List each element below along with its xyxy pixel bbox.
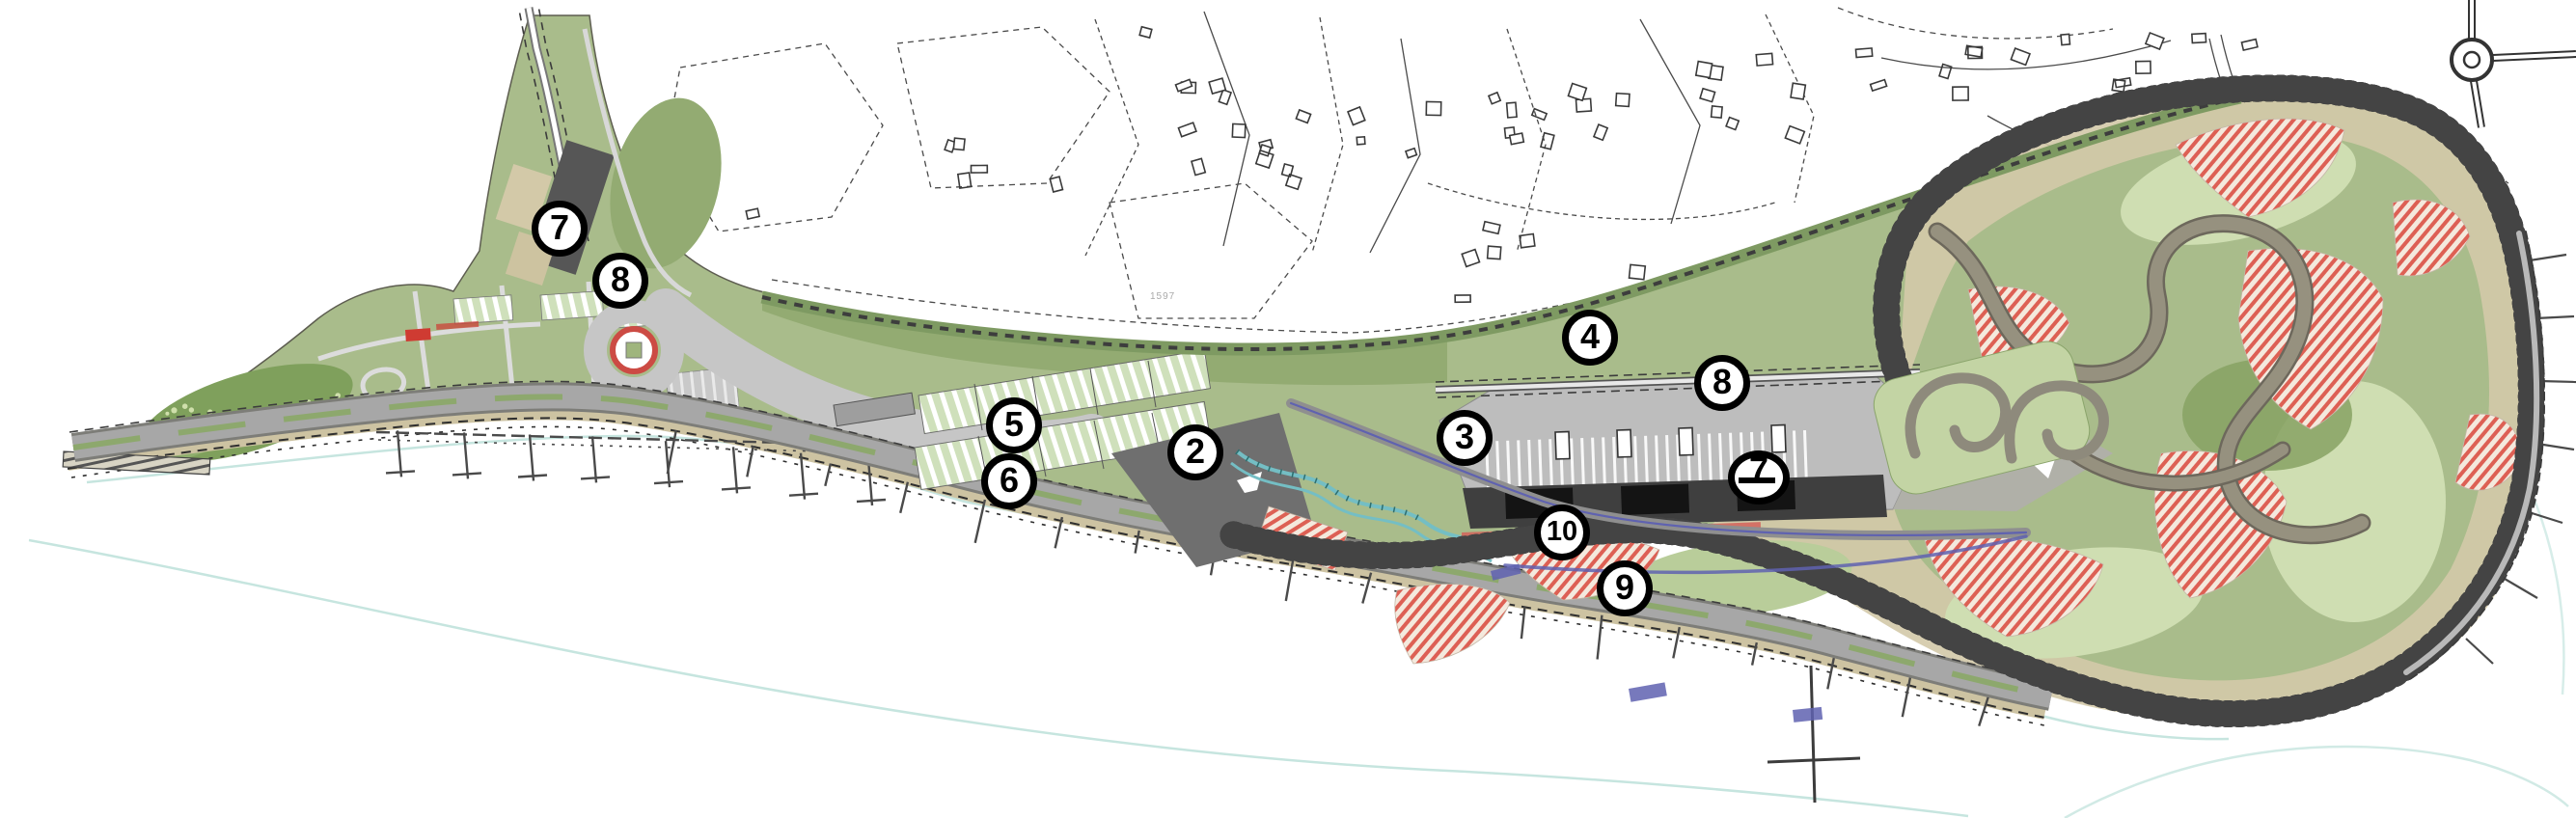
red-building: [405, 328, 431, 341]
parcel-number-label: 1597: [1150, 291, 1175, 302]
parking-row-2: [540, 291, 604, 320]
runoff-sw: [1395, 585, 1510, 664]
parking-row-1: [453, 295, 513, 324]
site-plan-canvas: ELBASAN 1597: [0, 0, 2576, 818]
long-pier: [1768, 666, 1860, 803]
site-plan-svg: ELBASAN 1597: [0, 0, 2576, 818]
kart-ring-center: [626, 342, 642, 358]
